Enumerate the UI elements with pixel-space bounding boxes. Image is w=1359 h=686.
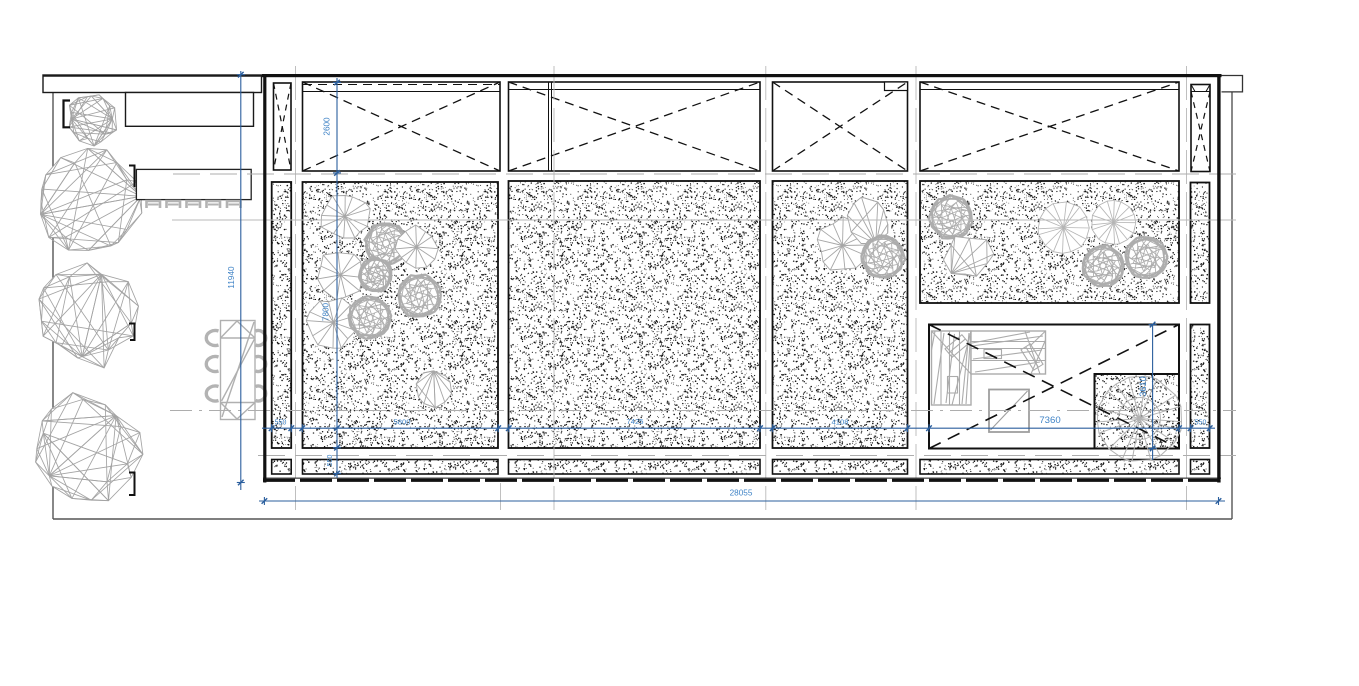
svg-text:11940: 11940 xyxy=(227,266,236,289)
svg-text:7425: 7425 xyxy=(627,417,644,426)
svg-text:550: 550 xyxy=(327,455,334,467)
svg-text:7800: 7800 xyxy=(322,302,331,321)
svg-text:3610: 3610 xyxy=(1138,376,1148,396)
svg-text:4108: 4108 xyxy=(832,418,849,427)
svg-text:550: 550 xyxy=(275,419,287,426)
svg-text:5800: 5800 xyxy=(394,418,411,427)
svg-text:550: 550 xyxy=(1195,419,1207,426)
svg-text:7360: 7360 xyxy=(1039,415,1060,426)
svg-text:2600: 2600 xyxy=(323,117,332,136)
svg-text:28055: 28055 xyxy=(730,488,753,497)
